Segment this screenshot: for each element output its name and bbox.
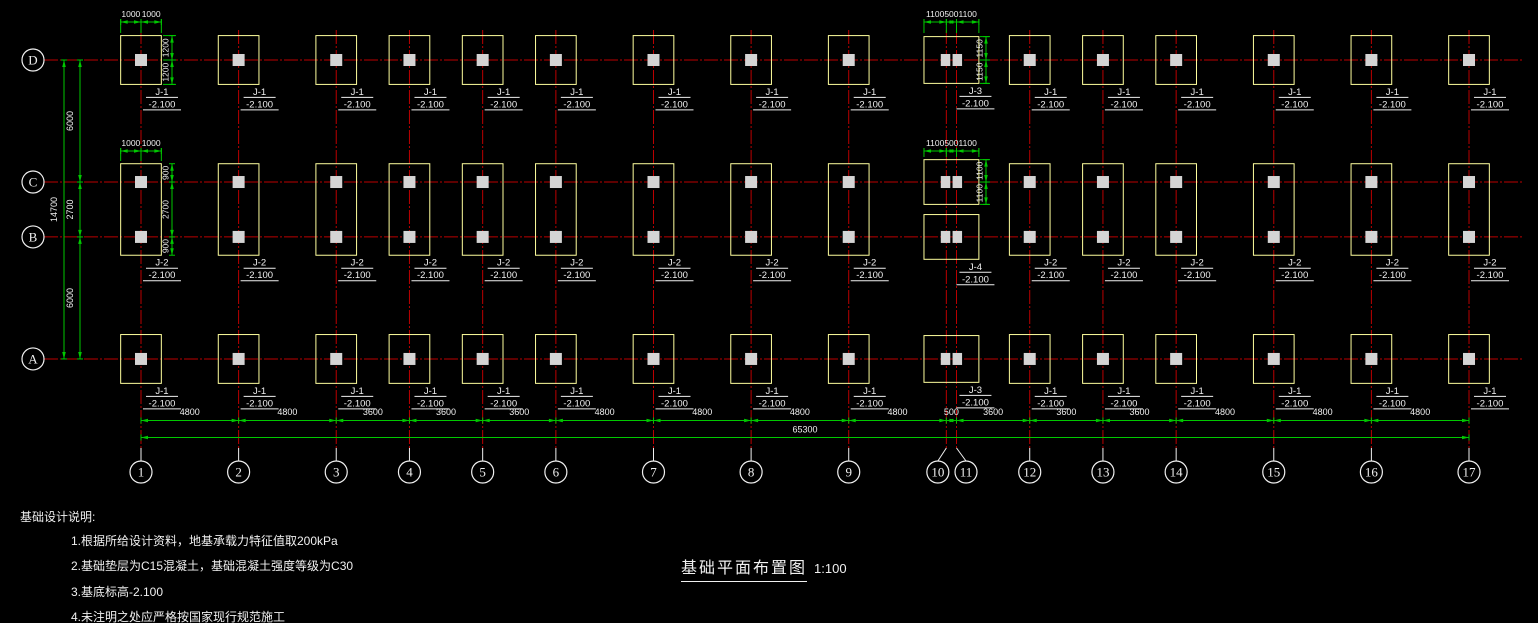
- dim-arrow: [556, 419, 563, 423]
- footing-elevation: -2.100: [1281, 270, 1308, 281]
- dim-arrow: [62, 352, 66, 359]
- dim-label: 500: [944, 9, 958, 19]
- footing-elevation: -2.100: [759, 270, 786, 281]
- dim-arrow: [957, 419, 964, 423]
- dim-arrow: [232, 419, 239, 423]
- grid-bubble-row-B-label: B: [29, 229, 38, 244]
- dim-arrow: [170, 237, 174, 244]
- dim-arrow: [141, 20, 148, 24]
- footing-elevation: -2.100: [149, 270, 176, 281]
- dim-arrow: [984, 37, 988, 44]
- grid-bubble-col-8-label: 8: [748, 465, 755, 480]
- dim-arrow: [402, 419, 409, 423]
- dim-arrow: [984, 160, 988, 167]
- dim-arrow: [170, 60, 174, 67]
- column: [1463, 353, 1475, 365]
- grid-bubble-col-9-label: 9: [845, 465, 852, 480]
- footing-elevation: -2.100: [246, 398, 273, 409]
- column: [403, 353, 415, 365]
- column: [1365, 353, 1377, 365]
- footing-elevation: -2.100: [1379, 99, 1406, 110]
- dim-label: 4800: [888, 407, 908, 417]
- dim-arrow: [78, 60, 82, 67]
- footing-elevation: -2.100: [1037, 398, 1064, 409]
- column: [330, 231, 342, 243]
- footing-label: J-1: [1483, 87, 1496, 98]
- footing-elevation: -2.100: [246, 99, 273, 110]
- grid-bubble-col-13-label: 13: [1096, 465, 1109, 480]
- grid-bubble-row-A-label: A: [28, 351, 38, 366]
- dim-arrow: [78, 352, 82, 359]
- dim-arrow: [170, 248, 174, 255]
- footing-label: J-3: [969, 385, 982, 396]
- footing-elevation: -2.100: [856, 398, 883, 409]
- footing-label: J-1: [351, 386, 364, 397]
- footing-label: J-1: [1044, 87, 1057, 98]
- dim-arrow: [924, 149, 931, 153]
- dim-arrow: [842, 419, 849, 423]
- note-line-1: 1.根据所给设计资料，地基承载力特征值取200kPa: [71, 529, 671, 554]
- column: [1097, 353, 1109, 365]
- column: [1024, 231, 1036, 243]
- dim-label: 4800: [1313, 407, 1333, 417]
- footing-elevation: -2.100: [563, 99, 590, 110]
- column: [745, 231, 757, 243]
- footing-elevation: -2.100: [1037, 270, 1064, 281]
- dim-label: 4800: [790, 407, 810, 417]
- column: [941, 231, 951, 243]
- design-notes: 基础设计说明: 1.根据所给设计资料，地基承载力特征值取200kPa 2.基础垫…: [20, 508, 95, 525]
- dim-label: 1100: [926, 9, 945, 19]
- dim-label: 900: [161, 239, 171, 253]
- dim-arrow: [1462, 436, 1469, 440]
- footing-elevation: -2.100: [1110, 99, 1137, 110]
- dim-arrow: [170, 53, 174, 60]
- column: [647, 353, 659, 365]
- dim-arrow: [329, 419, 336, 423]
- footing-label: J-1: [497, 386, 510, 397]
- grid-bubble-col-4-label: 4: [406, 465, 413, 480]
- dim-label: 4800: [1215, 407, 1235, 417]
- dim-label: 2700: [161, 200, 171, 219]
- footing-elevation: -2.100: [490, 99, 517, 110]
- column: [1097, 231, 1109, 243]
- column: [745, 353, 757, 365]
- footing-label: J-1: [1386, 87, 1399, 98]
- footing-label: J-1: [155, 87, 168, 98]
- dim-arrow: [409, 419, 416, 423]
- dim-label: 1150: [975, 62, 985, 81]
- column: [941, 176, 951, 188]
- column: [843, 176, 855, 188]
- column: [1463, 176, 1475, 188]
- footing-label: J-2: [1191, 258, 1204, 269]
- dim-arrow: [1267, 419, 1274, 423]
- dim-arrow: [141, 436, 148, 440]
- column: [1268, 176, 1280, 188]
- column: [941, 353, 951, 365]
- footing-elevation: -2.100: [417, 270, 444, 281]
- grid-bubble-col-7-label: 7: [650, 465, 657, 480]
- note-line-3: 3.基底标高-2.100: [71, 580, 671, 605]
- dim-arrow: [476, 419, 483, 423]
- footing-label: J-2: [253, 258, 266, 269]
- footing-elevation: -2.100: [962, 397, 989, 408]
- column: [1463, 54, 1475, 66]
- dim-arrow: [134, 20, 141, 24]
- dim-arrow: [924, 20, 931, 24]
- column: [550, 176, 562, 188]
- column: [843, 54, 855, 66]
- dim-arrow: [984, 53, 988, 60]
- dim-arrow: [1103, 419, 1110, 423]
- footing-elevation: -2.100: [661, 398, 688, 409]
- dim-arrow: [141, 419, 148, 423]
- footing-label: J-1: [497, 87, 510, 98]
- dim-arrow: [78, 175, 82, 182]
- dim-arrow: [744, 419, 751, 423]
- footing-label: J-1: [668, 386, 681, 397]
- dim-arrow: [653, 419, 660, 423]
- dim-label-overall-width: 65300: [792, 425, 817, 435]
- dim-arrow: [141, 149, 148, 153]
- dim-label: 4800: [277, 407, 297, 417]
- footing-elevation: -2.100: [1184, 398, 1211, 409]
- column: [403, 54, 415, 66]
- grid-bubble-col-12-label: 12: [1023, 465, 1036, 480]
- footing-label: J-1: [424, 87, 437, 98]
- footing-label: J-1: [155, 386, 168, 397]
- dim-arrow: [1096, 419, 1103, 423]
- footing-elevation: -2.100: [344, 99, 371, 110]
- column: [233, 54, 245, 66]
- footing-elevation: -2.100: [1184, 99, 1211, 110]
- column: [1170, 176, 1182, 188]
- grid-bubble-col-5-label: 5: [479, 465, 486, 480]
- grid-leader: [957, 448, 967, 461]
- dim-label: 900: [161, 166, 171, 180]
- column: [550, 353, 562, 365]
- footing-label: J-1: [766, 87, 779, 98]
- grid-bubble-col-17-label: 17: [1463, 465, 1477, 480]
- footing-label: J-1: [570, 87, 583, 98]
- footing-elevation: -2.100: [344, 270, 371, 281]
- footing-label: J-1: [253, 386, 266, 397]
- footing-label: J-1: [1288, 386, 1301, 397]
- dim-label: 1200: [161, 62, 171, 81]
- footing-label: J-1: [570, 386, 583, 397]
- dim-label: 500: [944, 138, 958, 148]
- dim-label: 6000: [65, 288, 75, 308]
- footing-elevation: -2.100: [1037, 99, 1064, 110]
- footing-label: J-1: [1483, 386, 1496, 397]
- column: [941, 54, 951, 66]
- grid-bubble-col-2-label: 2: [235, 465, 242, 480]
- dim-arrow: [170, 77, 174, 84]
- dim-arrow: [957, 149, 964, 153]
- footing-label: J-2: [1288, 258, 1301, 269]
- footing-elevation: -2.100: [856, 270, 883, 281]
- column: [1024, 353, 1036, 365]
- footing-label: J-1: [668, 87, 681, 98]
- dim-arrow: [972, 149, 979, 153]
- column: [403, 176, 415, 188]
- dim-arrow: [1023, 419, 1030, 423]
- dim-arrow: [1274, 419, 1281, 423]
- drawing-title-block: 基础平面布置图1:100: [681, 554, 847, 582]
- footing-elevation: -2.100: [661, 270, 688, 281]
- cad-canvas[interactable]: 4800480036003600360048004800480048005003…: [0, 0, 1538, 623]
- footing-elevation: -2.100: [1379, 398, 1406, 409]
- grid-bubble-row-C-label: C: [29, 175, 38, 190]
- footing-label: J-1: [863, 386, 876, 397]
- dim-arrow: [78, 182, 82, 189]
- dim-label: 1200: [161, 38, 171, 57]
- column: [1170, 231, 1182, 243]
- footing-elevation: -2.100: [490, 270, 517, 281]
- dim-label: 1100: [926, 138, 945, 148]
- column: [135, 54, 147, 66]
- dim-arrow: [78, 230, 82, 237]
- footing-elevation: -2.100: [1281, 99, 1308, 110]
- footing-label: J-1: [1288, 87, 1301, 98]
- grid-bubble-col-3-label: 3: [333, 465, 340, 480]
- footing-elevation: -2.100: [344, 398, 371, 409]
- footing-label: J-1: [863, 87, 876, 98]
- dim-label: 4800: [692, 407, 712, 417]
- footing-elevation: -2.100: [759, 99, 786, 110]
- grid-bubble-col-10-label: 10: [931, 465, 944, 480]
- dim-arrow: [984, 182, 988, 189]
- footing-label: J-2: [668, 258, 681, 269]
- footing-label: J-2: [1117, 258, 1130, 269]
- footing-elevation: -2.100: [563, 270, 590, 281]
- footing-label: J-1: [1386, 386, 1399, 397]
- column: [233, 176, 245, 188]
- dim-arrow: [483, 419, 490, 423]
- footing-label: J-2: [1483, 258, 1496, 269]
- dim-arrow: [984, 175, 988, 182]
- footing-elevation: -2.100: [962, 98, 989, 109]
- dim-label: 1000: [121, 138, 140, 148]
- footing-elevation: -2.100: [856, 99, 883, 110]
- grid-bubble-row-D-label: D: [28, 53, 37, 68]
- dim-arrow: [170, 182, 174, 189]
- footing-elevation: -2.100: [1477, 270, 1504, 281]
- column: [953, 231, 963, 243]
- grid-bubble-col-16-label: 16: [1365, 465, 1379, 480]
- column: [1268, 54, 1280, 66]
- footing-elevation: -2.100: [563, 398, 590, 409]
- column: [477, 231, 489, 243]
- column: [477, 176, 489, 188]
- footing-elevation: -2.100: [1477, 99, 1504, 110]
- column: [1268, 231, 1280, 243]
- footing-elevation: -2.100: [417, 398, 444, 409]
- footing-label: J-2: [863, 258, 876, 269]
- footing-elevation: -2.100: [1110, 398, 1137, 409]
- column: [330, 54, 342, 66]
- dim-arrow: [154, 149, 161, 153]
- footing-label: J-1: [1117, 87, 1130, 98]
- column: [233, 231, 245, 243]
- footing-elevation: -2.100: [149, 398, 176, 409]
- notes-list: 1.根据所给设计资料，地基承载力特征值取200kPa 2.基础垫层为C15混凝土…: [71, 529, 671, 623]
- dim-arrow: [1462, 419, 1469, 423]
- footing-elevation: -2.100: [149, 99, 176, 110]
- footing-label: J-1: [1191, 386, 1204, 397]
- dim-label: 4800: [1410, 407, 1430, 417]
- footing-elevation: -2.100: [661, 99, 688, 110]
- dim-label: 6000: [65, 111, 75, 131]
- grid-bubble-col-6-label: 6: [553, 465, 560, 480]
- footing-label: J-2: [1044, 258, 1057, 269]
- dim-arrow: [78, 237, 82, 244]
- footing-elevation: -2.100: [759, 398, 786, 409]
- column: [953, 176, 963, 188]
- dim-arrow: [957, 20, 964, 24]
- column: [843, 353, 855, 365]
- column: [550, 54, 562, 66]
- dim-arrow: [170, 230, 174, 237]
- column: [1024, 54, 1036, 66]
- footing-label: J-3: [969, 86, 982, 97]
- column: [647, 176, 659, 188]
- dim-arrow: [121, 149, 128, 153]
- footing-label: J-1: [766, 386, 779, 397]
- dim-arrow: [984, 60, 988, 67]
- column: [550, 231, 562, 243]
- dim-label: 1100: [959, 9, 978, 19]
- footing-elevation: -2.100: [962, 274, 989, 285]
- dim-arrow: [1176, 419, 1183, 423]
- column: [1268, 353, 1280, 365]
- column: [1365, 176, 1377, 188]
- footing-label: J-1: [1117, 386, 1130, 397]
- dim-arrow: [972, 20, 979, 24]
- column: [953, 54, 963, 66]
- column: [477, 353, 489, 365]
- dim-arrow: [170, 164, 174, 171]
- footing-label: J-2: [155, 258, 168, 269]
- dim-arrow: [939, 20, 946, 24]
- dim-label: 1000: [142, 138, 161, 148]
- column: [233, 353, 245, 365]
- drawing-scale: 1:100: [814, 561, 847, 576]
- footing-label: J-2: [766, 258, 779, 269]
- dim-arrow: [939, 419, 946, 423]
- grid-bubble-col-14-label: 14: [1170, 465, 1184, 480]
- footing-label: J-1: [424, 386, 437, 397]
- column: [1024, 176, 1036, 188]
- footing-label: J-2: [424, 258, 437, 269]
- column: [1170, 353, 1182, 365]
- footing-label: J-2: [351, 258, 364, 269]
- column: [330, 176, 342, 188]
- column: [647, 54, 659, 66]
- dim-arrow: [62, 60, 66, 67]
- dim-arrow: [1371, 419, 1378, 423]
- dim-label: 3600: [983, 407, 1003, 417]
- column: [1365, 231, 1377, 243]
- dim-arrow: [121, 20, 128, 24]
- footing-label: J-4: [969, 262, 982, 273]
- dim-label: 4800: [180, 407, 200, 417]
- column: [135, 353, 147, 365]
- dim-arrow: [1030, 419, 1037, 423]
- dim-label: 1100: [975, 161, 985, 180]
- dim-arrow: [1169, 419, 1176, 423]
- column: [135, 176, 147, 188]
- note-line-2: 2.基础垫层为C15混凝土，基础混凝土强度等级为C30: [71, 554, 671, 579]
- grid-bubble-col-1-label: 1: [138, 465, 145, 480]
- column: [745, 176, 757, 188]
- column: [477, 54, 489, 66]
- dim-label: 4800: [595, 407, 615, 417]
- grid-bubble-col-11-label: 11: [960, 465, 973, 480]
- footing-elevation: -2.100: [246, 270, 273, 281]
- dim-label-overall-height: 14700: [49, 197, 59, 222]
- dim-label: 1100: [975, 184, 985, 203]
- column: [1097, 176, 1109, 188]
- footing-label: J-2: [570, 258, 583, 269]
- dim-arrow: [336, 419, 343, 423]
- column: [403, 231, 415, 243]
- dim-label: 500: [944, 407, 959, 417]
- column: [1097, 54, 1109, 66]
- dim-label: 1000: [121, 9, 140, 19]
- column: [330, 353, 342, 365]
- footing-elevation: -2.100: [1281, 398, 1308, 409]
- drawing-title: 基础平面布置图: [681, 554, 807, 582]
- footing-label: J-1: [1191, 87, 1204, 98]
- grid-bubble-col-15-label: 15: [1267, 465, 1280, 480]
- footing-elevation: -2.100: [1110, 270, 1137, 281]
- grid-leader: [938, 448, 947, 461]
- footing-elevation: -2.100: [417, 99, 444, 110]
- dim-arrow: [170, 36, 174, 43]
- column: [745, 54, 757, 66]
- dim-arrow: [239, 419, 246, 423]
- footing-elevation: -2.100: [1477, 398, 1504, 409]
- dim-arrow: [849, 419, 856, 423]
- column: [843, 231, 855, 243]
- footing-elevation: -2.100: [490, 398, 517, 409]
- dim-arrow: [939, 149, 946, 153]
- dim-label: 2700: [65, 199, 75, 219]
- dim-arrow: [984, 76, 988, 83]
- footing-elevation: -2.100: [1184, 270, 1211, 281]
- dim-arrow: [134, 149, 141, 153]
- footing-label: J-1: [253, 87, 266, 98]
- column: [1365, 54, 1377, 66]
- footing-label: J-1: [351, 87, 364, 98]
- column: [135, 231, 147, 243]
- dim-label: 1100: [959, 138, 978, 148]
- dim-arrow: [1364, 419, 1371, 423]
- notes-heading: 基础设计说明:: [20, 508, 95, 525]
- column: [953, 353, 963, 365]
- footing-label: J-1: [1044, 386, 1057, 397]
- dim-arrow: [170, 175, 174, 182]
- dim-arrow: [549, 419, 556, 423]
- note-line-4: 4.未注明之处应严格按国家现行规范施工: [71, 605, 671, 623]
- dim-arrow: [154, 20, 161, 24]
- dim-arrow: [751, 419, 758, 423]
- column: [1463, 231, 1475, 243]
- dim-arrow: [984, 197, 988, 204]
- footing-label: J-2: [1386, 258, 1399, 269]
